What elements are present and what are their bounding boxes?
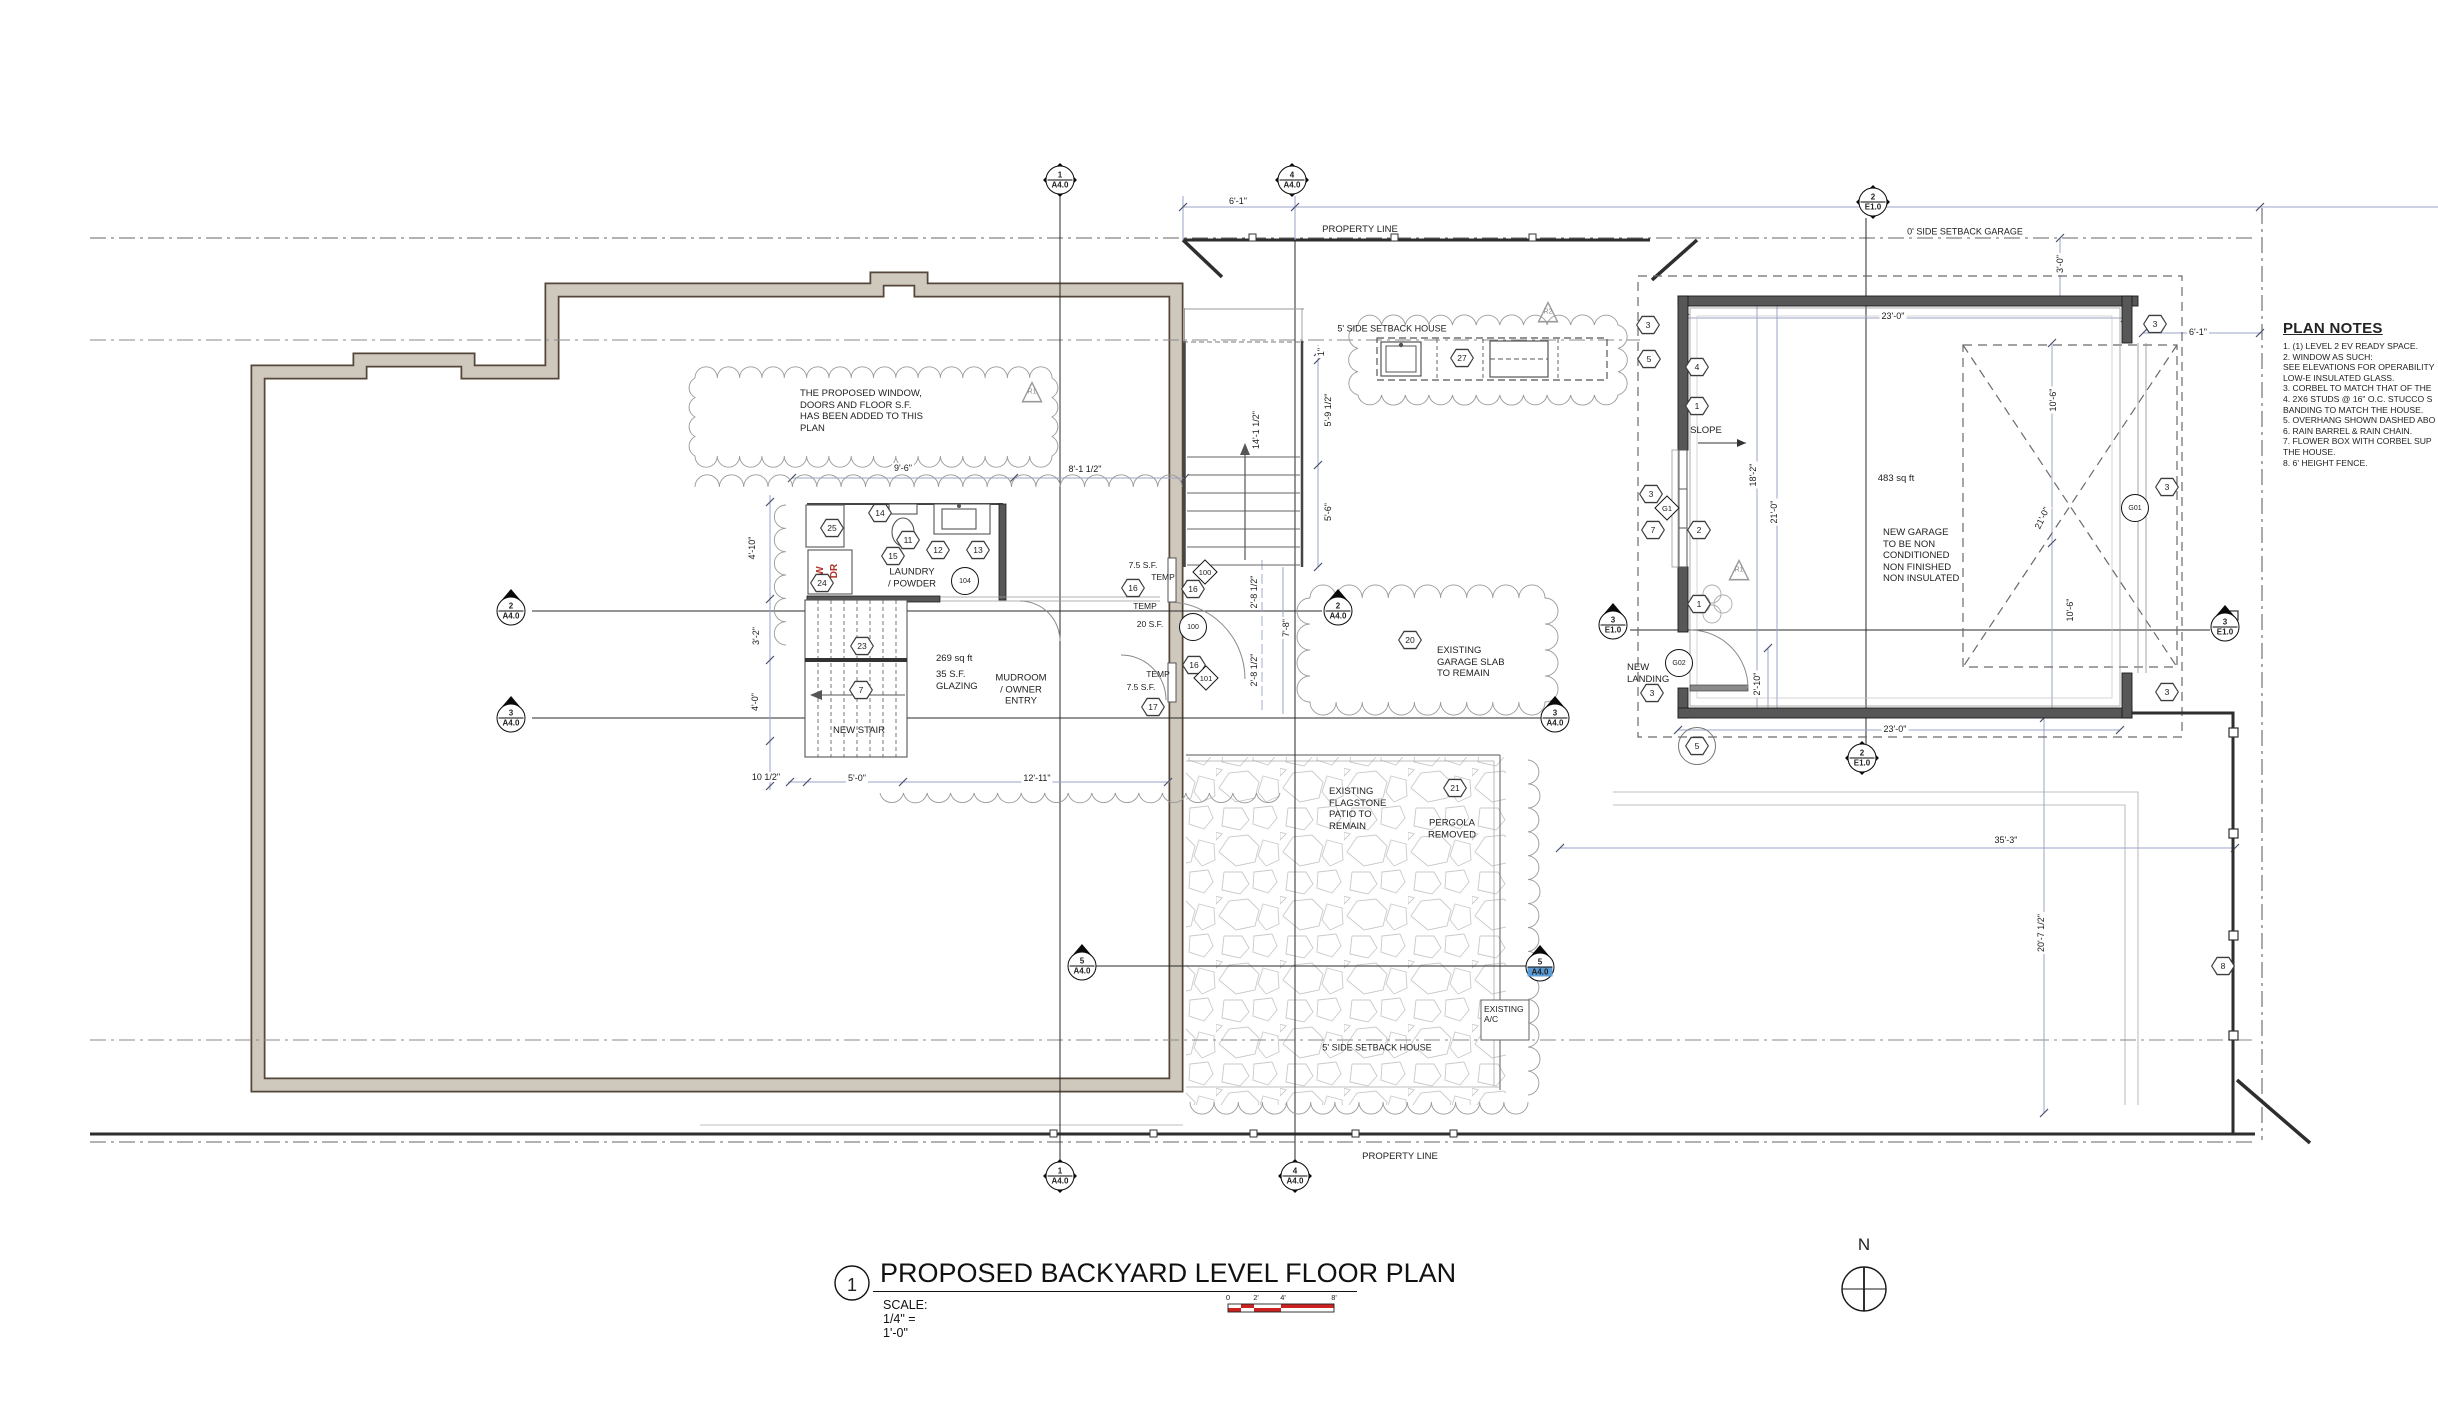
plan-note-line: 4. 2X6 STUDS @ 16" O.C. STUCCO S [2283,394,2438,405]
keynote-hexagon: 21 [1442,778,1468,798]
plan-note-line: 3. CORBEL TO MATCH THAT OF THE [2283,383,2438,394]
dimension-label: 5'-0" [846,773,868,783]
plan-note-line: SEE ELEVATIONS FOR OPERABILITY [2283,362,2438,373]
dimension-label: 21'-0" [2032,504,2052,533]
mudroom-sqft: 269 sq ft [936,653,972,665]
plan-notes-heading: PLAN NOTES [2283,320,2438,337]
section-marker: 1A4.0 [1046,1162,1074,1190]
plan-notes: PLAN NOTES 1. (1) LEVEL 2 EV READY SPACE… [2283,320,2438,468]
plan-note-line: 5. OVERHANG SHOWN DASHED ABO [2283,415,2438,426]
new-landing: NEW LANDING [1627,662,1669,685]
keynote-hexagon: 3 [1635,315,1661,335]
title-rule [873,1291,1357,1292]
section-marker: 5A4.0 [1526,953,1554,981]
win101-sf: 7.5 S.F. [1127,682,1156,692]
dimension-label: 23'-0" [1880,311,1907,321]
dimension-label: 2'-10" [1752,671,1762,698]
keynote-hexagon: 24 [809,573,835,593]
dimension-label: 14'-1 1/2" [1251,409,1261,451]
section-marker: 5A4.0 [1068,952,1096,980]
dimension-label: 21'-0" [1769,499,1779,526]
property-line-top: PROPERTY LINE [1322,224,1398,236]
keynote-hexagon: 25 [819,518,845,538]
section-marker: 4A4.0 [1278,166,1306,194]
scale-bar-tick: 0 [1226,1293,1230,1302]
dimension-label: 4'-10" [747,535,757,562]
floor-plan-sheet: { "drawing": { "title_number": "1", "tit… [0,0,2438,1412]
keynote-hexagon: 8 [2210,956,2236,976]
win100-temp: TEMP [1151,572,1175,582]
scale-bar-tick: 2' [1253,1293,1259,1302]
plan-note-line: BANDING TO MATCH THE HOUSE. [2283,405,2438,416]
keynote-hexagon: 16 [1120,578,1146,598]
dimension-label: 2'-8 1/2" [1249,652,1259,689]
door100-sf: 20 S.F. [1137,619,1163,629]
revision-triangle-icon: △R1 [1021,376,1043,404]
scale-bar-tick: 4' [1280,1293,1286,1302]
drawing-scale: SCALE: 1/4" = 1'-0" [883,1298,927,1340]
keynote-hexagon: 1 [1684,396,1710,416]
setback-garage: 0' SIDE SETBACK GARAGE [1907,227,2023,238]
revision-triangle-icon: △R2 [1537,296,1559,324]
keynote-hexagon: 12 [925,540,951,560]
plan-note-line: LOW-E INSULATED GLASS. [2283,373,2438,384]
north-label: N [1858,1235,1870,1255]
section-marker: 2A4.0 [1324,597,1352,625]
dimension-label: 3'-0" [2055,253,2065,275]
tag-diamond: G1 [1654,495,1679,520]
dimension-label: 35'-3" [1993,835,2020,845]
keynote-hexagon: 20 [1397,630,1423,650]
dimension-label: 5'-6" [1323,501,1333,523]
keynote-hexagon: 17 [1140,697,1166,717]
dimension-label: 10 1/2" [750,772,782,782]
keynote-hexagon: 5 [1636,349,1662,369]
revision-triangle-icon: △R1 [1728,554,1750,582]
pergola-note: PERGOLA REMOVED [1428,817,1476,840]
section-marker: 1A4.0 [1046,166,1074,194]
section-marker: 3E1.0 [2211,613,2239,641]
section-marker: 2A4.0 [497,597,525,625]
keynote-hexagon: 3 [2154,477,2180,497]
tag-diamond: 101 [1193,665,1218,690]
keynote-hexagon: 27 [1449,348,1475,368]
dimension-label: 12'-11" [1021,773,1052,783]
door100-temp: TEMP [1133,601,1157,611]
section-marker: 3A4.0 [1541,704,1569,732]
mudroom-room: MUDROOM / OWNER ENTRY [995,673,1046,708]
plan-note-line: 7. FLOWER BOX WITH CORBEL SUP [2283,436,2438,447]
mudroom-glazing: 35 S.F. GLAZING [936,669,978,692]
keynote-hexagon: 15 [880,546,906,566]
garage-note: NEW GARAGE TO BE NON CONDITIONED NON FIN… [1883,527,1959,585]
win100-sf: 7.5 S.F. [1129,560,1158,570]
setback-house-top: 5' SIDE SETBACK HOUSE [1337,324,1446,335]
new-stair: NEW STAIR [833,725,885,737]
dimension-label: 6'-1" [1227,196,1249,206]
slab-note: EXISTING GARAGE SLAB TO REMAIN [1437,645,1505,680]
dimension-label: 20'-7 1/2" [2036,912,2046,954]
tag-circle: 104 [951,567,979,595]
dimension-label: 8'-1 1/2" [1067,464,1104,474]
setback-house-bottom: 5' SIDE SETBACK HOUSE [1322,1043,1431,1054]
laundry-room: LAUNDRY / POWDER [888,566,936,589]
dimension-label: 7'-8" [1281,617,1291,639]
keynote-hexagon: 3 [2142,314,2168,334]
section-marker: 2E1.0 [1859,188,1887,216]
plan-note-line: 8. 6' HEIGHT FENCE. [2283,458,2438,469]
drawing-title: PROPOSED BACKYARD LEVEL FLOOR PLAN [880,1258,1456,1289]
plan-note-line: 6. RAIN BARREL & RAIN CHAIN. [2283,426,2438,437]
dimension-label: 5'-9 1/2" [1323,392,1333,429]
patio-note: EXISTING FLAGSTONE PATIO TO REMAIN [1329,786,1386,832]
drawing-number: 1 [835,1268,869,1302]
keynote-hexagon: 3 [1639,683,1665,703]
garage-sqft: 483 sq ft [1878,473,1914,485]
dimension-label: 18'-2" [1748,462,1758,489]
scale-bar-tick: 8' [1331,1293,1337,1302]
keynote-hexagon: 13 [965,540,991,560]
keynote-hexagon: 4 [1684,357,1710,377]
plan-note-line: 2. WINDOW AS SUCH: [2283,352,2438,363]
plan-notes-list: 1. (1) LEVEL 2 EV READY SPACE.2. WINDOW … [2283,341,2438,468]
dimension-label: 1" [1316,346,1326,358]
ac-unit: EXISTING A/C [1484,1004,1524,1025]
section-marker: 3E1.0 [1599,611,1627,639]
dimension-label: 9'-6" [892,463,914,473]
keynote-hexagon: 2 [1686,520,1712,540]
keynote-hexagon: 1 [1686,594,1712,614]
keynote-hexagon: 3 [2154,682,2180,702]
tag-circle: G02 [1665,649,1693,677]
annotation-overlay: 1 PROPOSED BACKYARD LEVEL FLOOR PLAN SCA… [0,0,2438,1412]
section-marker: 3A4.0 [497,704,525,732]
property-line-bottom: PROPERTY LINE [1362,1151,1438,1163]
dimension-label: 10'-6" [2048,387,2058,414]
slope: SLOPE [1690,425,1722,437]
tag-circle: G01 [2121,494,2149,522]
keynote-hexagon: 5 [1684,736,1710,756]
keynote-hexagon: 23 [849,636,875,656]
dimension-label: 3'-2" [751,625,761,647]
keynote-hexagon: 7 [848,680,874,700]
keynote-hexagon: 14 [867,503,893,523]
section-marker: 2E1.0 [1848,744,1876,772]
dimension-label: 10'-6" [2065,597,2075,624]
plan-note-line: 1. (1) LEVEL 2 EV READY SPACE. [2283,341,2438,352]
keynote-hexagon: 7 [1640,520,1666,540]
dimension-label: 23'-0" [1882,724,1909,734]
tag-circle: 100 [1179,613,1207,641]
dimension-label: 4'-0" [750,691,760,713]
plan-note-line: THE HOUSE. [2283,447,2438,458]
dimension-label: 6'-1" [2187,327,2209,337]
dimension-label: 2'-8 1/2" [1249,574,1259,611]
win101-temp: TEMP [1146,669,1170,679]
revision-note: THE PROPOSED WINDOW, DOORS AND FLOOR S.F… [800,388,923,434]
section-marker: 4A4.0 [1281,1162,1309,1190]
